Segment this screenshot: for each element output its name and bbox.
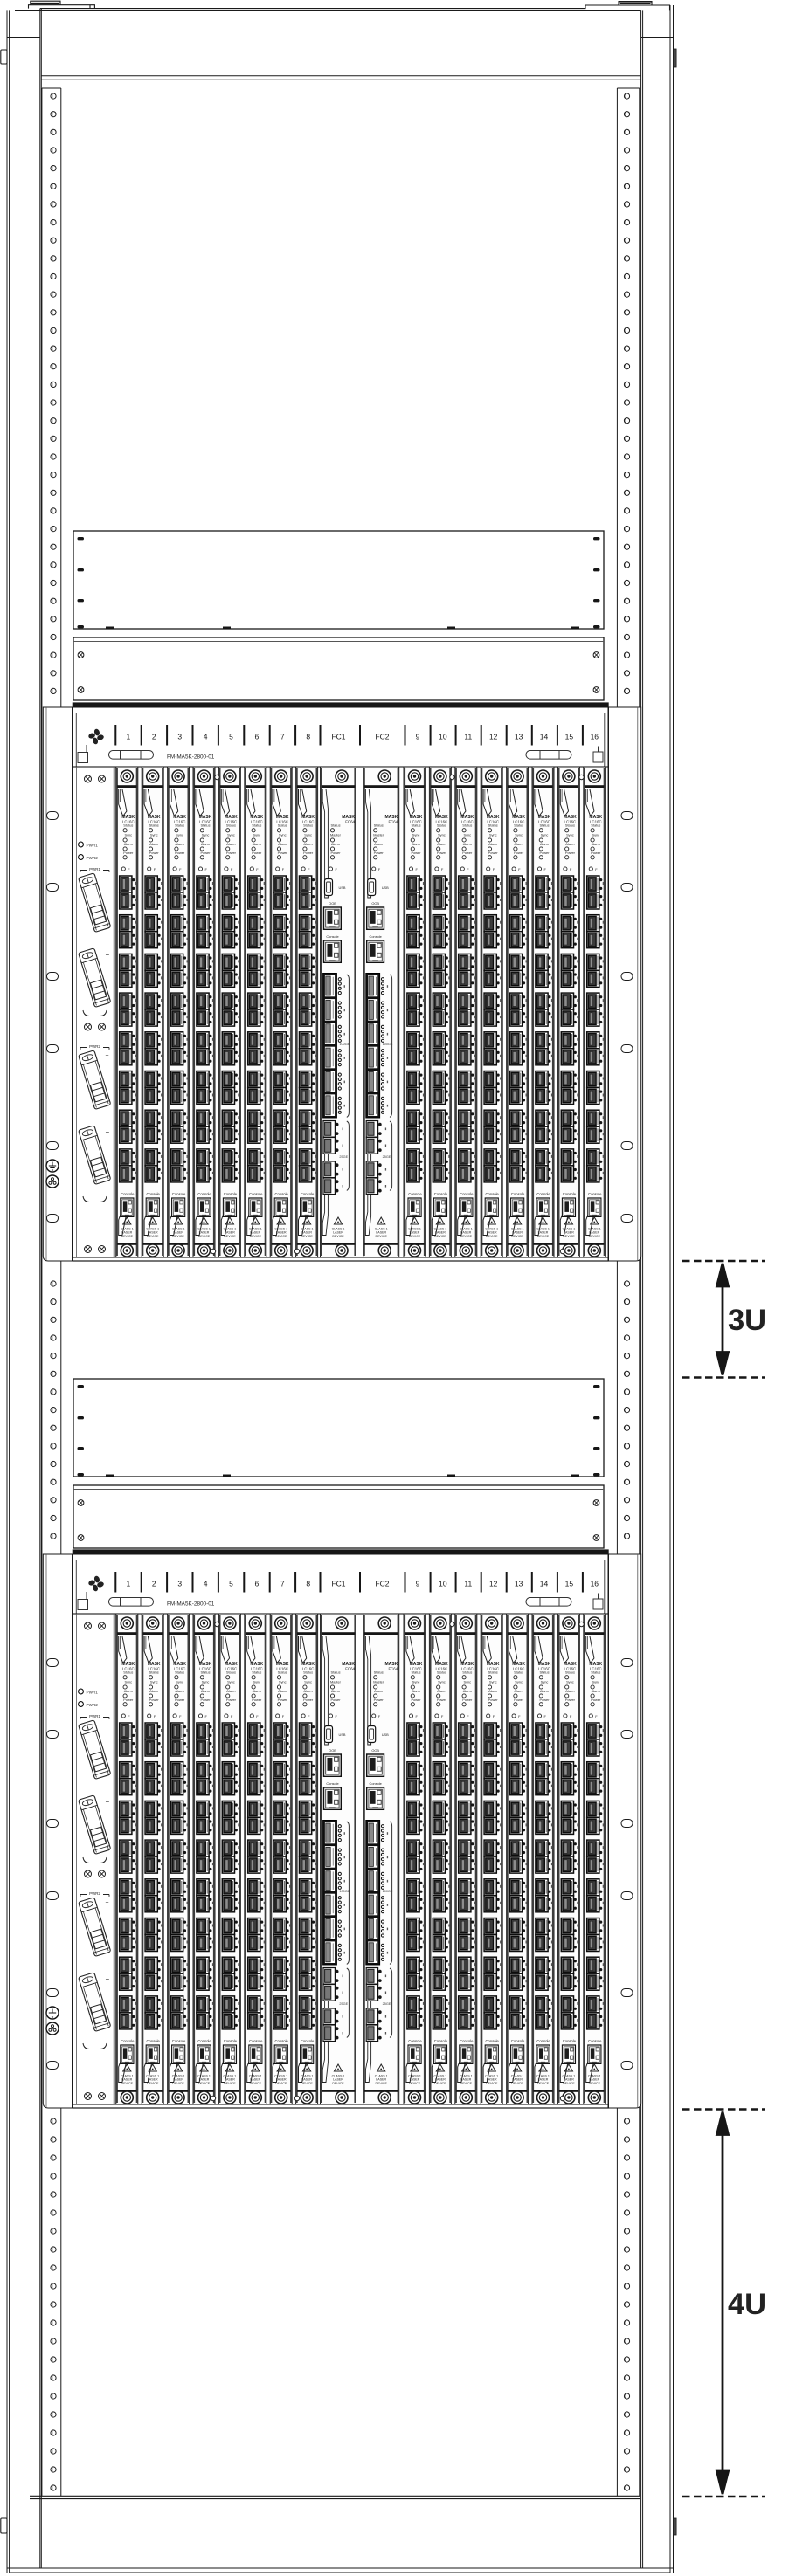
svg-text:3U: 3U	[728, 1304, 766, 1337]
svg-text:4U: 4U	[728, 2288, 766, 2321]
